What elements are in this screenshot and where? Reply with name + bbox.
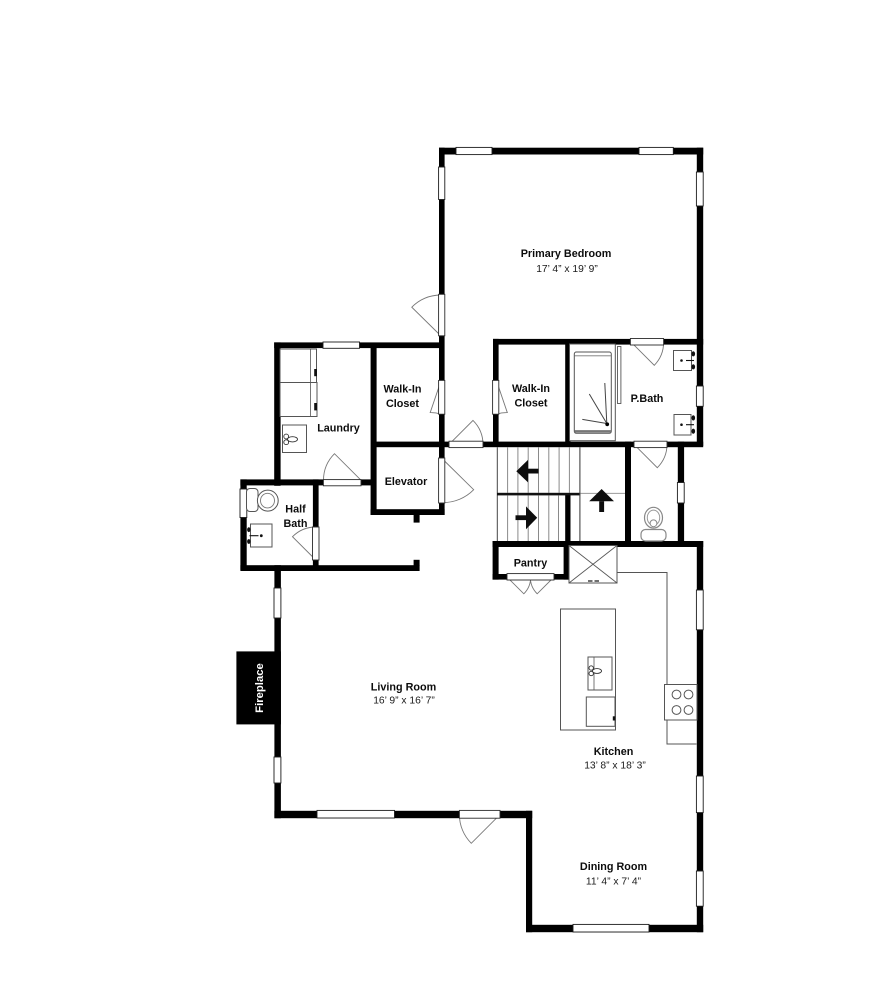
svg-text:Bath: Bath [284, 518, 308, 530]
svg-text:Elevator: Elevator [385, 476, 428, 488]
svg-text:Pantry: Pantry [514, 558, 548, 570]
svg-text:Living Room: Living Room [371, 682, 436, 694]
svg-text:Half: Half [285, 504, 306, 516]
svg-text:Dining Room: Dining Room [580, 861, 647, 873]
svg-text:Walk-In: Walk-In [512, 383, 550, 395]
svg-text:Closet: Closet [386, 398, 419, 410]
svg-text:16’ 9” x 16’ 7”: 16’ 9” x 16’ 7” [373, 696, 435, 707]
svg-text:Walk-In: Walk-In [384, 384, 422, 396]
svg-text:Closet: Closet [515, 398, 548, 410]
svg-text:Laundry: Laundry [317, 423, 360, 435]
svg-text:11’ 4” x 7’ 4”: 11’ 4” x 7’ 4” [586, 877, 642, 888]
svg-text:17’ 4” x 19’ 9”: 17’ 4” x 19’ 9” [536, 264, 598, 275]
svg-text:13’ 8” x 18’ 3”: 13’ 8” x 18’ 3” [584, 761, 646, 772]
svg-text:P.Bath: P.Bath [631, 393, 664, 405]
svg-text:Kitchen: Kitchen [594, 746, 634, 758]
svg-text:Fireplace: Fireplace [254, 663, 266, 713]
svg-text:Primary Bedroom: Primary Bedroom [521, 248, 612, 260]
